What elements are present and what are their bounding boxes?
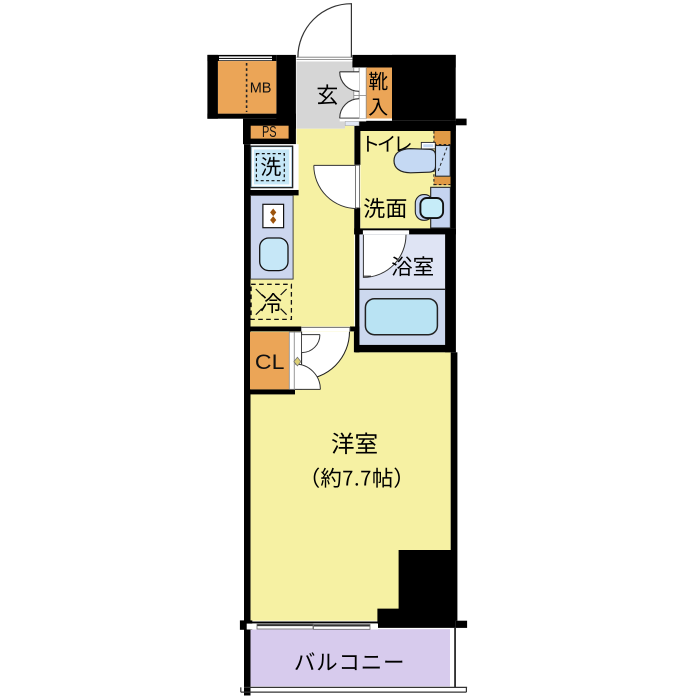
svg-text:PS: PS	[262, 124, 277, 141]
svg-text:CL: CL	[255, 351, 285, 374]
svg-text:MB: MB	[250, 81, 272, 97]
